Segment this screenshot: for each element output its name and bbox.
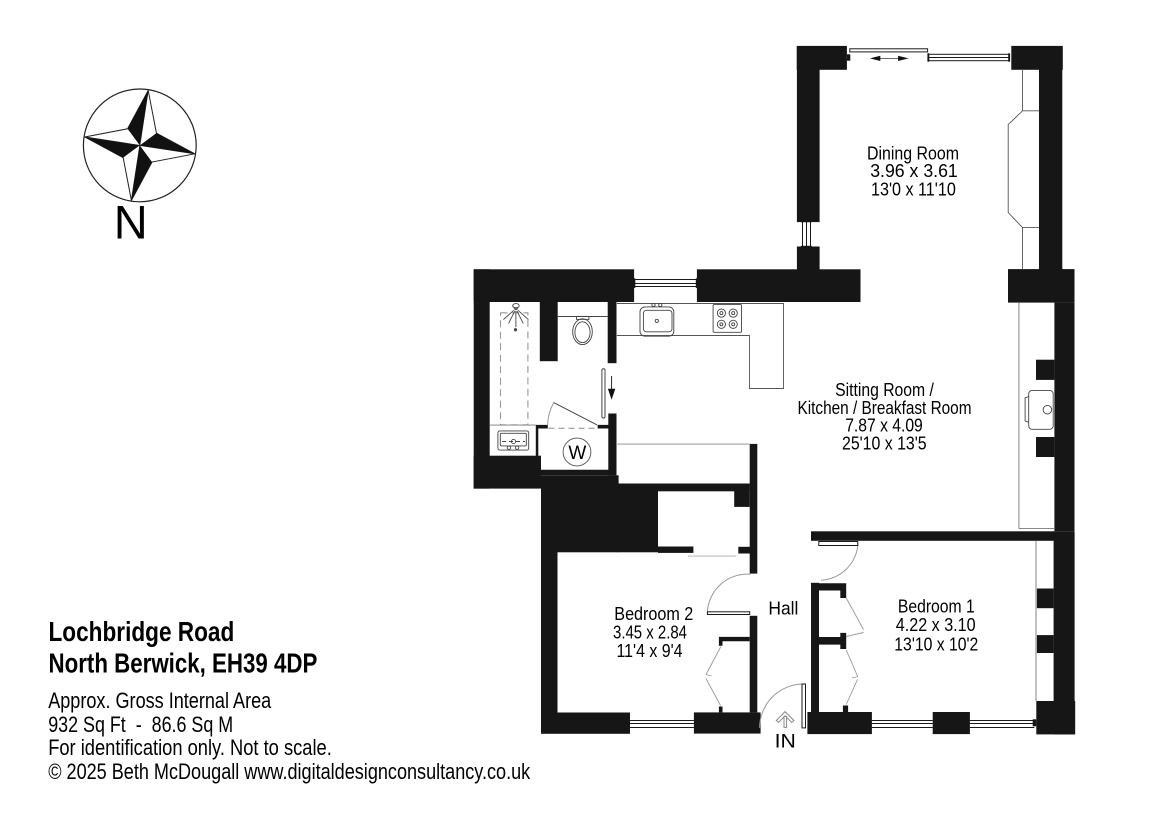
svg-text:25'10 x 13'5: 25'10 x 13'5 — [842, 432, 927, 453]
svg-text:© 2025 Beth McDougall www.digi: © 2025 Beth McDougall www.digitaldesignc… — [48, 759, 530, 784]
svg-text:11'4 x 9'4: 11'4 x 9'4 — [617, 640, 683, 661]
svg-text:Lochbridge Road: Lochbridge Road — [49, 616, 235, 647]
svg-text:For identification only. Not t: For identification only. Not to scale. — [48, 735, 332, 760]
svg-text:13'10 x 10'2: 13'10 x 10'2 — [894, 633, 978, 654]
svg-text:13'0 x 11'10: 13'0 x 11'10 — [871, 178, 956, 199]
svg-text:Hall: Hall — [768, 598, 798, 619]
svg-text:IN: IN — [775, 730, 796, 752]
svg-text:W: W — [568, 443, 586, 464]
svg-text:4.22 x 3.10: 4.22 x 3.10 — [896, 614, 976, 635]
svg-text:North Berwick, EH39 4DP: North Berwick, EH39 4DP — [49, 648, 318, 679]
svg-text:N: N — [114, 196, 148, 249]
svg-text:Approx. Gross Internal Area: Approx. Gross Internal Area — [48, 688, 272, 713]
svg-text:932 Sq Ft - 86.6 Sq M: 932 Sq Ft - 86.6 Sq M — [48, 712, 233, 737]
